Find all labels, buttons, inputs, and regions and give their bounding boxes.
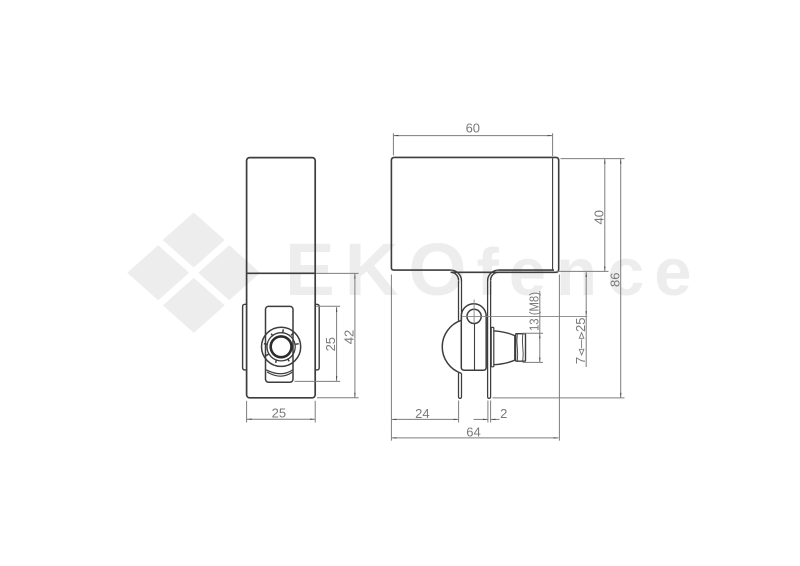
svg-text:42: 42 <box>342 330 357 344</box>
svg-text:25: 25 <box>573 318 588 332</box>
svg-text:40: 40 <box>591 210 606 224</box>
svg-text:7: 7 <box>573 357 588 364</box>
svg-text:25: 25 <box>323 337 338 351</box>
svg-text:24: 24 <box>415 406 429 421</box>
svg-text:EKOfence: EKOfence <box>285 228 701 311</box>
svg-text:60: 60 <box>466 121 480 136</box>
svg-text:64: 64 <box>466 424 480 439</box>
svg-text:2: 2 <box>500 406 507 421</box>
svg-text:13 (M8): 13 (M8) <box>526 292 541 331</box>
svg-text:25: 25 <box>272 406 286 421</box>
svg-text:86: 86 <box>607 273 622 287</box>
